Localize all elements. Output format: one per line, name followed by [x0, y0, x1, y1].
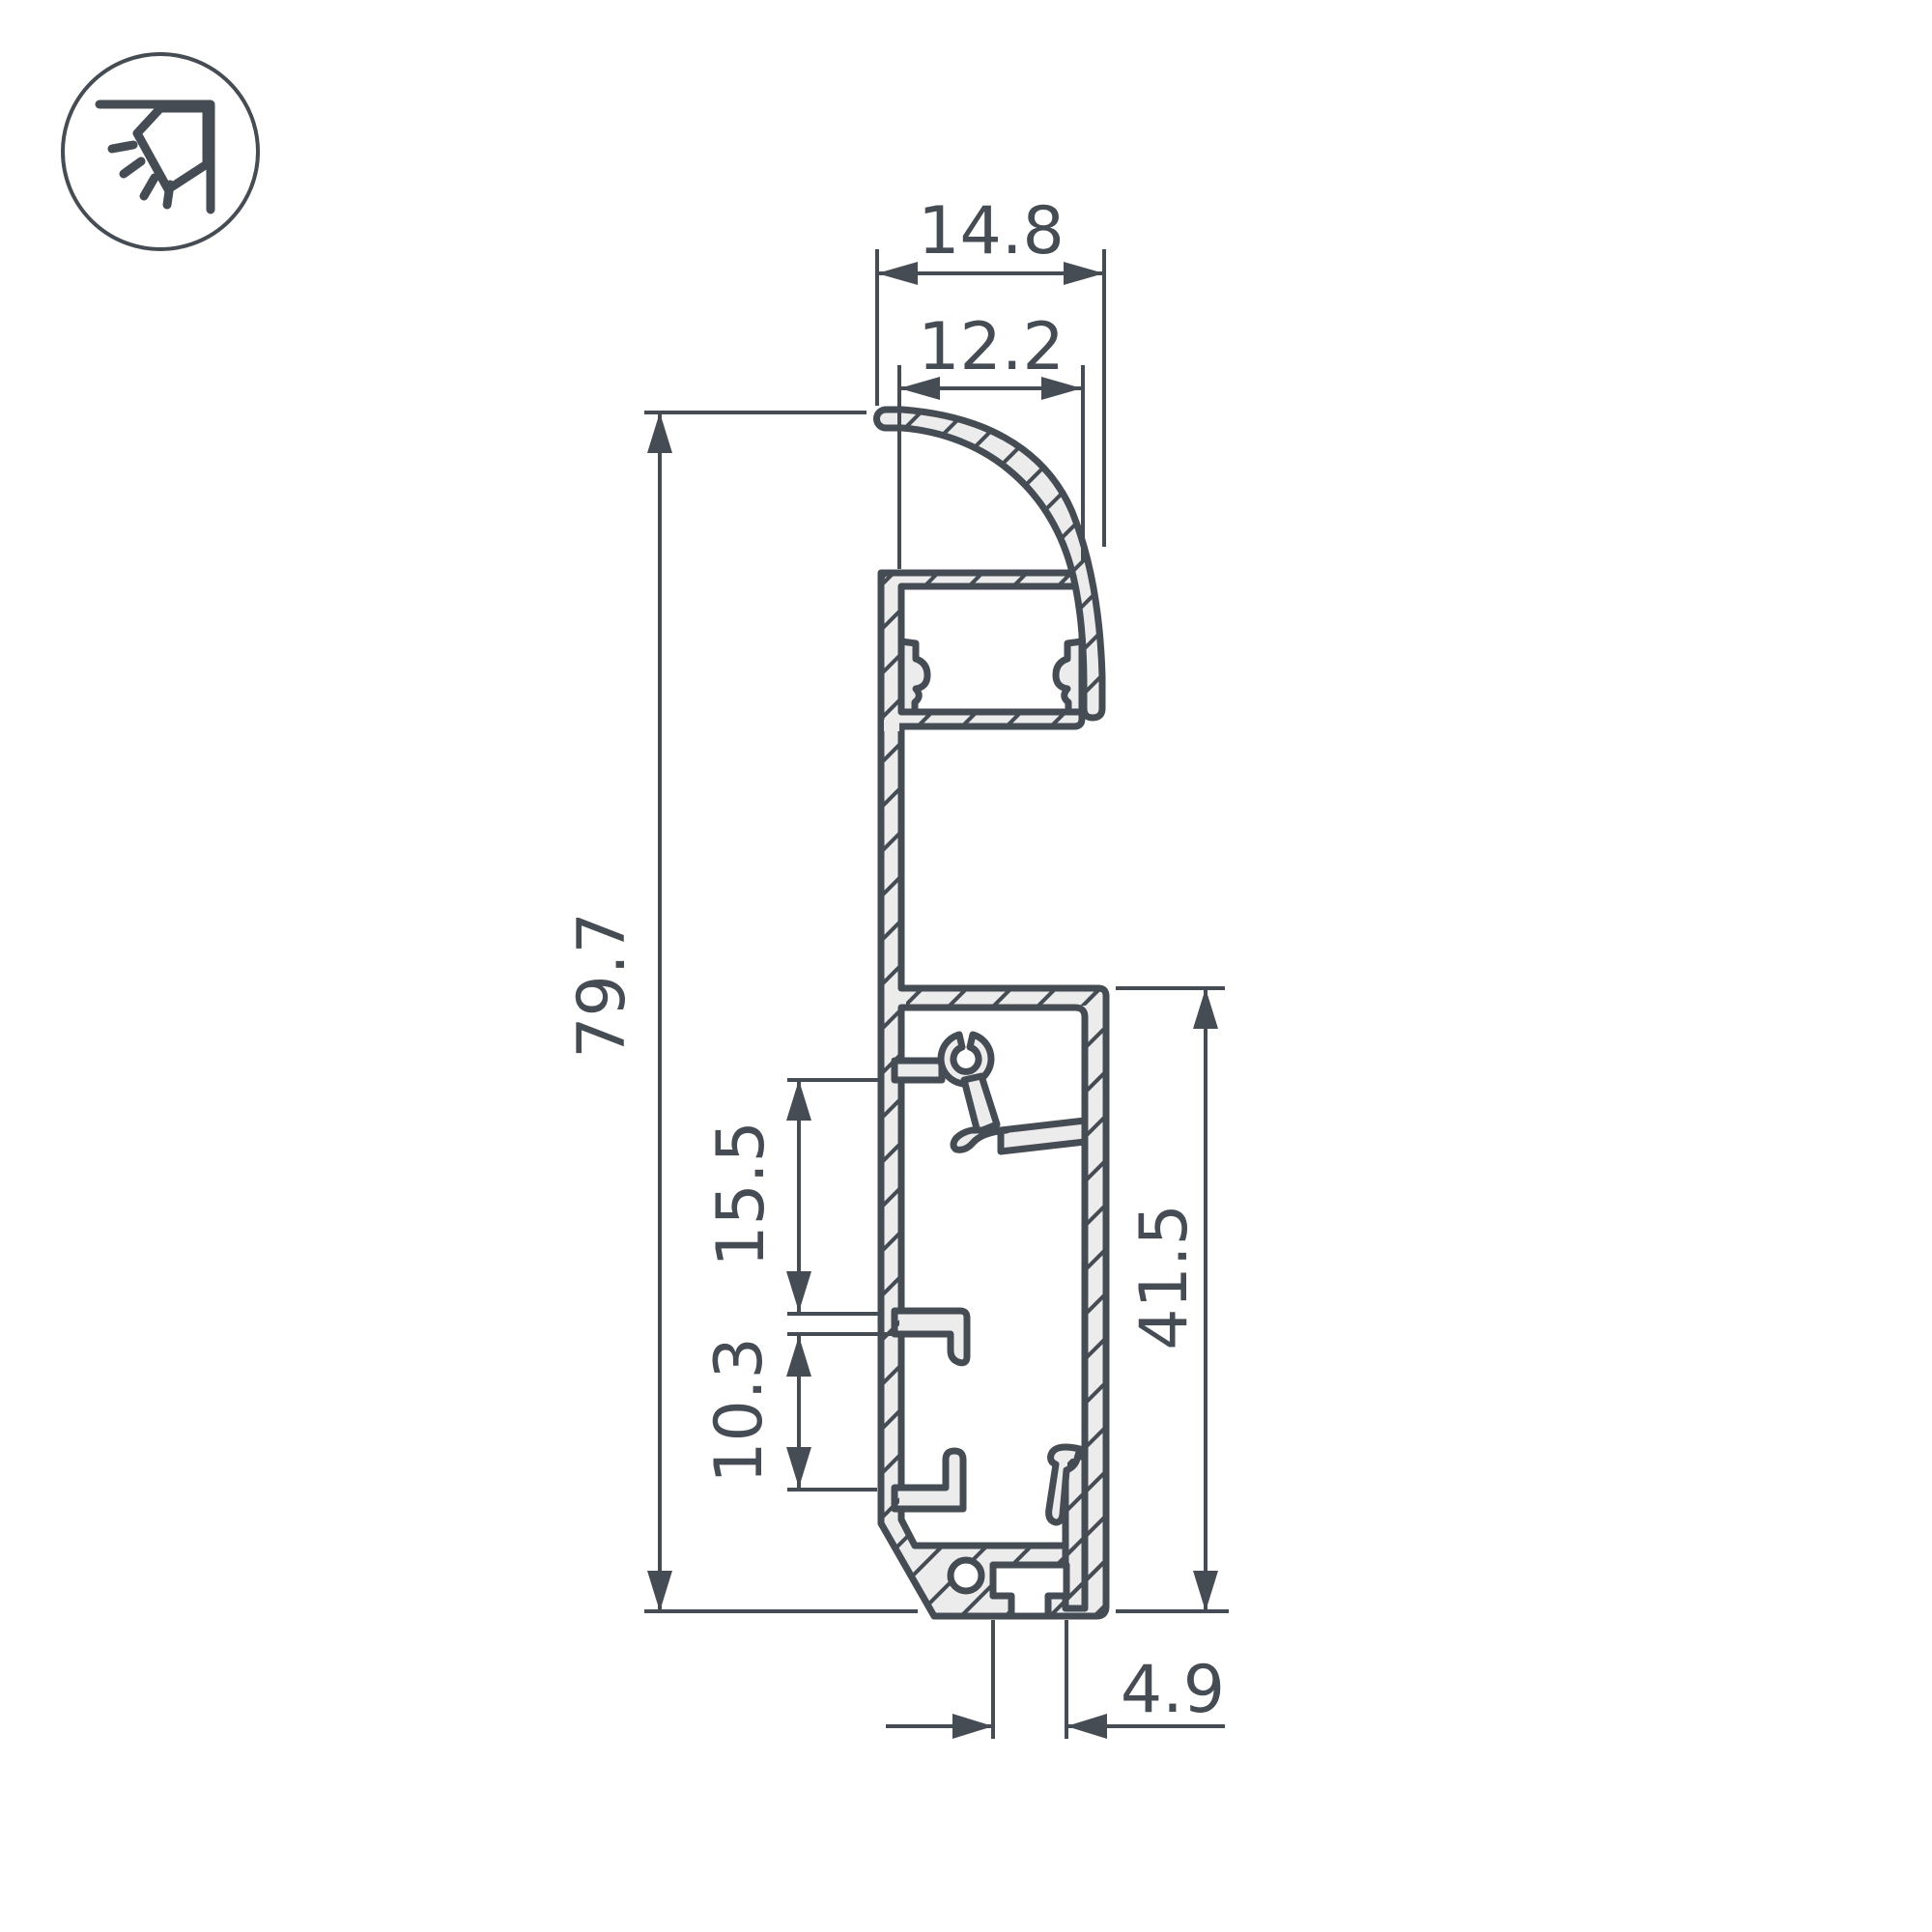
dim-label-inner-top-width: 12.2 — [918, 309, 1064, 385]
dim-label-total-height: 79.7 — [564, 912, 640, 1058]
dim-label-upper-pocket-height: 15.5 — [703, 1121, 780, 1266]
dimension-15-5: 15.5 — [703, 1080, 881, 1314]
dimension-4-9: 4.9 — [886, 1620, 1225, 1739]
led-channel-cavity — [901, 586, 1082, 712]
profile-drawing: 14.8 12.2 79.7 41.5 15.5 — [0, 0, 1932, 1932]
wall-washer-corner-light-icon — [63, 54, 258, 249]
dimension-10-3: 10.3 — [701, 1334, 896, 1490]
dim-label-bottom-slot-width: 4.9 — [1121, 1652, 1225, 1728]
dim-label-lower-pocket-height: 10.3 — [701, 1337, 778, 1483]
icon-lamp-shade — [137, 108, 207, 189]
screw-boss-stub — [895, 1061, 942, 1080]
screw-port-hole — [951, 1560, 981, 1591]
dim-label-right-section-height: 41.5 — [1126, 1204, 1203, 1350]
dim-label-outer-top-width: 14.8 — [918, 193, 1064, 270]
drawing-canvas: 14.8 12.2 79.7 41.5 15.5 — [0, 0, 1932, 1932]
dimension-41-5: 41.5 — [1116, 988, 1229, 1611]
profile-body — [877, 410, 1107, 1616]
